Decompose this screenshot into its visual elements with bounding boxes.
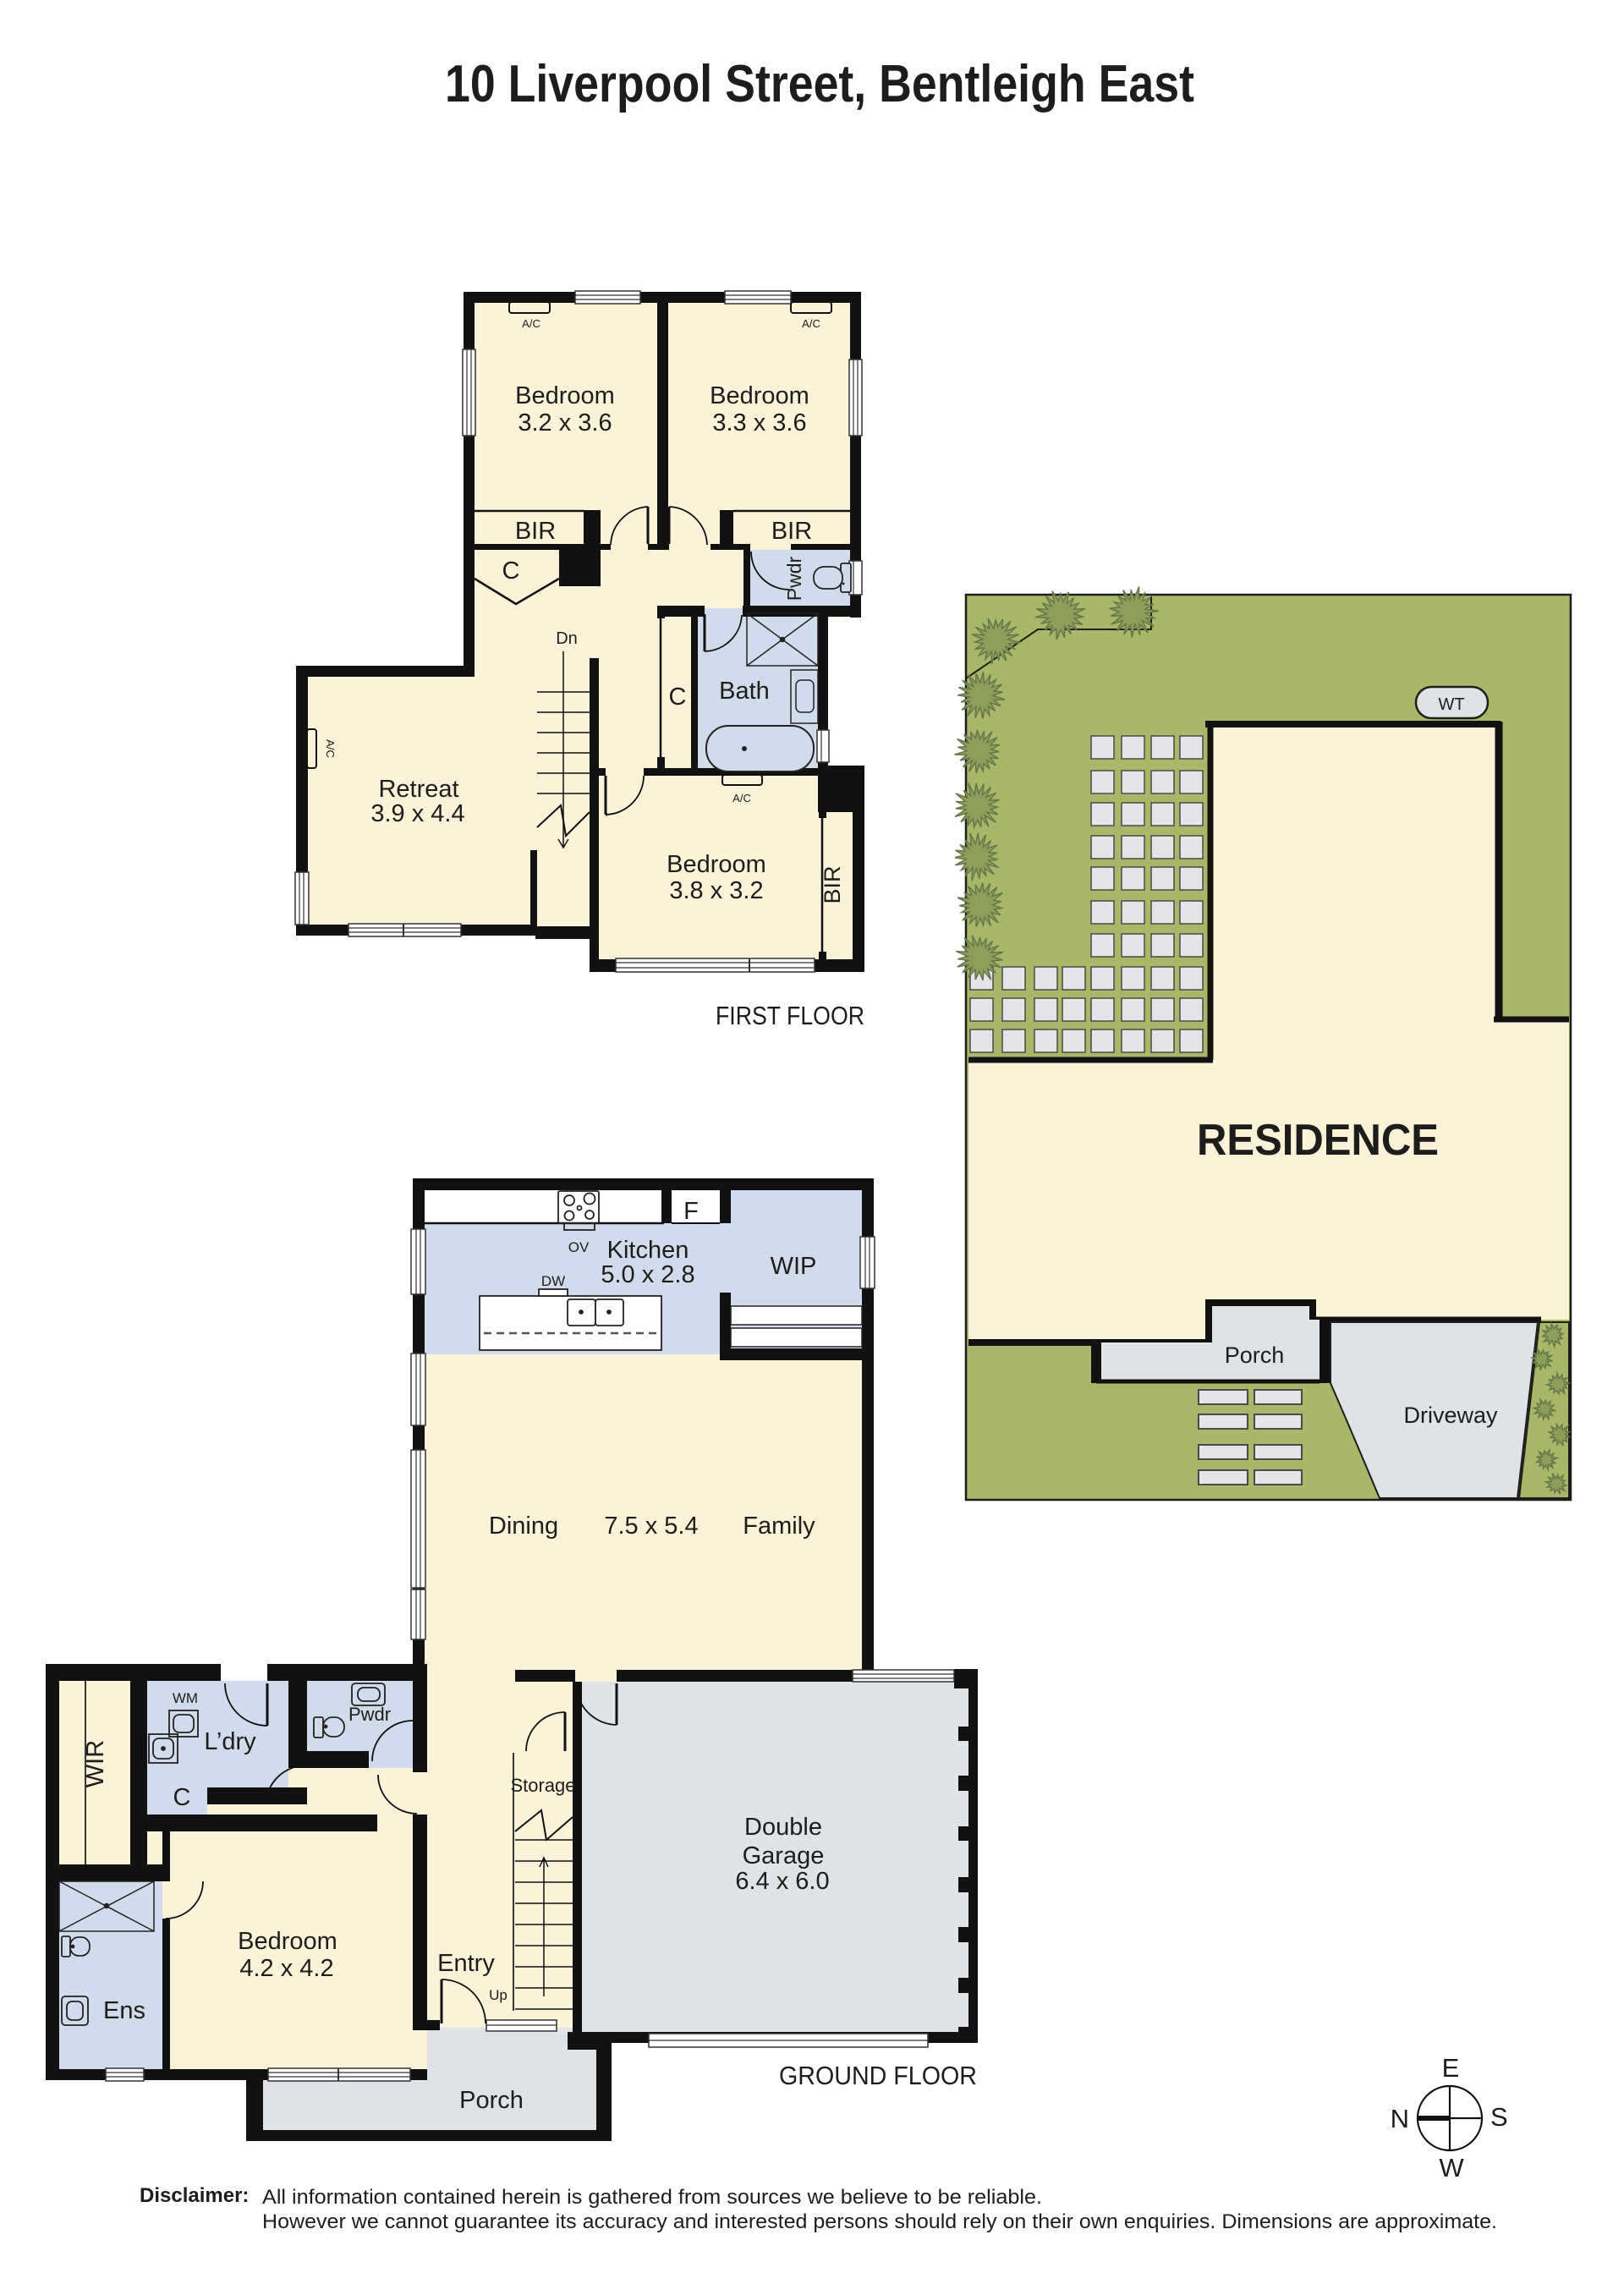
svg-text:E: E xyxy=(1442,2053,1460,2083)
svg-text:A/C: A/C xyxy=(324,739,337,758)
svg-text:Storage: Storage xyxy=(510,1775,575,1796)
svg-text:Double: Double xyxy=(744,1814,822,1841)
svg-text:Family: Family xyxy=(743,1513,815,1540)
svg-text:Pwdr: Pwdr xyxy=(783,556,805,601)
svg-text:3.2 x 3.6: 3.2 x 3.6 xyxy=(518,409,612,436)
svg-text:Porch: Porch xyxy=(1225,1342,1285,1368)
svg-text:C: C xyxy=(173,1784,191,1811)
svg-text:Pwdr: Pwdr xyxy=(348,1704,391,1725)
svg-text:C: C xyxy=(502,557,520,585)
svg-text:Kitchen: Kitchen xyxy=(607,1237,689,1264)
svg-text:5.0 x 2.8: 5.0 x 2.8 xyxy=(601,1261,694,1288)
svg-text:RESIDENCE: RESIDENCE xyxy=(1197,1116,1439,1165)
svg-text:BIR: BIR xyxy=(515,518,556,545)
svg-text:C: C xyxy=(669,684,687,711)
svg-text:7.5 x 5.4: 7.5 x 5.4 xyxy=(604,1513,698,1540)
svg-text:3.8 x 3.2: 3.8 x 3.2 xyxy=(669,877,763,904)
svg-text:6.4 x 6.0: 6.4 x 6.0 xyxy=(735,1868,829,1895)
svg-text:Bedroom: Bedroom xyxy=(238,1928,337,1955)
svg-text:However we cannot guarantee it: However we cannot guarantee its accuracy… xyxy=(262,2210,1497,2233)
svg-text:A/C: A/C xyxy=(802,317,820,330)
svg-text:Dn: Dn xyxy=(556,629,578,648)
svg-text:L’dry: L’dry xyxy=(204,1728,256,1755)
svg-text:Driveway: Driveway xyxy=(1403,1403,1498,1428)
svg-text:S: S xyxy=(1490,2102,1508,2132)
svg-text:GROUND FLOOR: GROUND FLOOR xyxy=(779,2061,977,2090)
svg-text:A/C: A/C xyxy=(732,792,751,804)
svg-text:DW: DW xyxy=(541,1273,565,1289)
svg-text:WM: WM xyxy=(173,1690,198,1706)
svg-text:Bedroom: Bedroom xyxy=(515,382,615,409)
svg-text:Retreat: Retreat xyxy=(378,776,458,803)
svg-text:10 Liverpool Street, Bentleigh: 10 Liverpool Street, Bentleigh East xyxy=(445,55,1194,113)
svg-text:Bath: Bath xyxy=(719,678,770,705)
svg-text:Disclaimer:: Disclaimer: xyxy=(140,2184,249,2207)
svg-text:3.9 x 4.4: 3.9 x 4.4 xyxy=(370,800,464,827)
svg-text:F: F xyxy=(683,1198,699,1225)
svg-text:Garage: Garage xyxy=(743,1842,825,1869)
svg-text:A/C: A/C xyxy=(522,317,540,330)
svg-text:Entry: Entry xyxy=(437,1950,495,1977)
svg-text:BIR: BIR xyxy=(820,865,845,903)
svg-text:4.2 x 4.2: 4.2 x 4.2 xyxy=(239,1955,333,1982)
svg-text:BIR: BIR xyxy=(771,518,812,545)
svg-text:3.3 x 3.6: 3.3 x 3.6 xyxy=(712,409,806,436)
svg-text:FIRST FLOOR: FIRST FLOOR xyxy=(716,1001,864,1030)
svg-text:OV: OV xyxy=(568,1239,590,1255)
svg-text:N: N xyxy=(1391,2104,1409,2133)
svg-text:WIR: WIR xyxy=(82,1740,109,1787)
svg-text:WT: WT xyxy=(1438,695,1464,714)
svg-text:W: W xyxy=(1439,2153,1464,2182)
svg-text:WIP: WIP xyxy=(771,1253,817,1280)
svg-text:Bedroom: Bedroom xyxy=(667,851,766,878)
svg-text:Bedroom: Bedroom xyxy=(710,382,809,409)
svg-text:All information contained here: All information contained herein is gath… xyxy=(262,2186,1042,2209)
svg-text:Dining: Dining xyxy=(489,1513,558,1540)
svg-text:Porch: Porch xyxy=(459,2087,524,2114)
svg-text:Ens: Ens xyxy=(103,1997,145,2024)
svg-text:Up: Up xyxy=(489,1987,507,2003)
